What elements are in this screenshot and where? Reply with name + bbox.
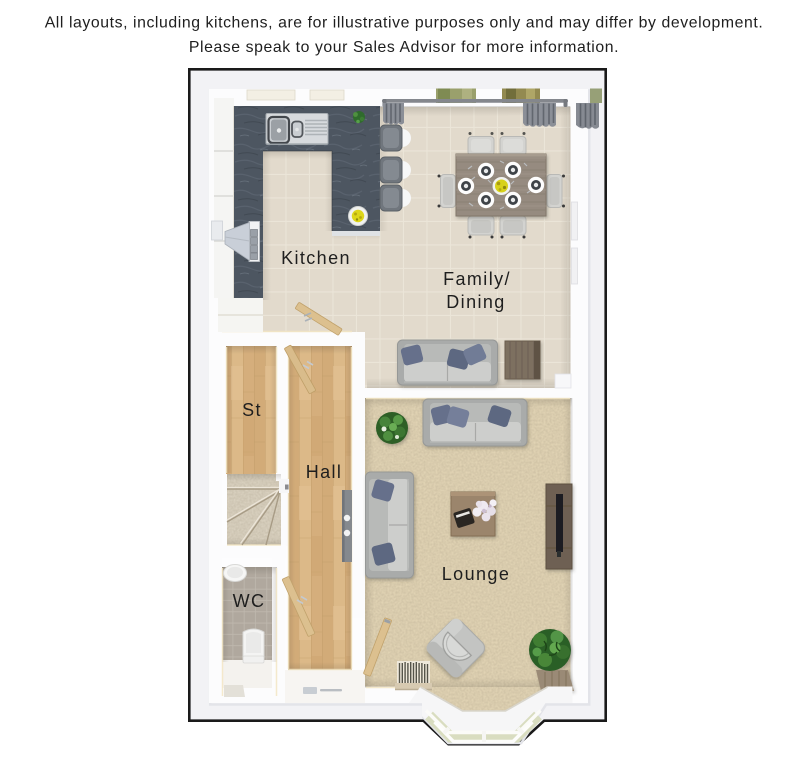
svg-text:Lounge: Lounge xyxy=(442,564,510,584)
svg-text:Dining: Dining xyxy=(446,292,505,312)
svg-text:St: St xyxy=(242,400,262,420)
svg-text:WC: WC xyxy=(233,591,266,611)
svg-text:Family/: Family/ xyxy=(443,269,511,289)
svg-text:Please speak to your Sales Adv: Please speak to your Sales Advisor for m… xyxy=(189,39,619,56)
svg-text:Kitchen: Kitchen xyxy=(281,248,351,268)
svg-text:Hall: Hall xyxy=(306,462,343,482)
svg-text:All layouts, including kitchen: All layouts, including kitchens, are for… xyxy=(45,15,764,32)
